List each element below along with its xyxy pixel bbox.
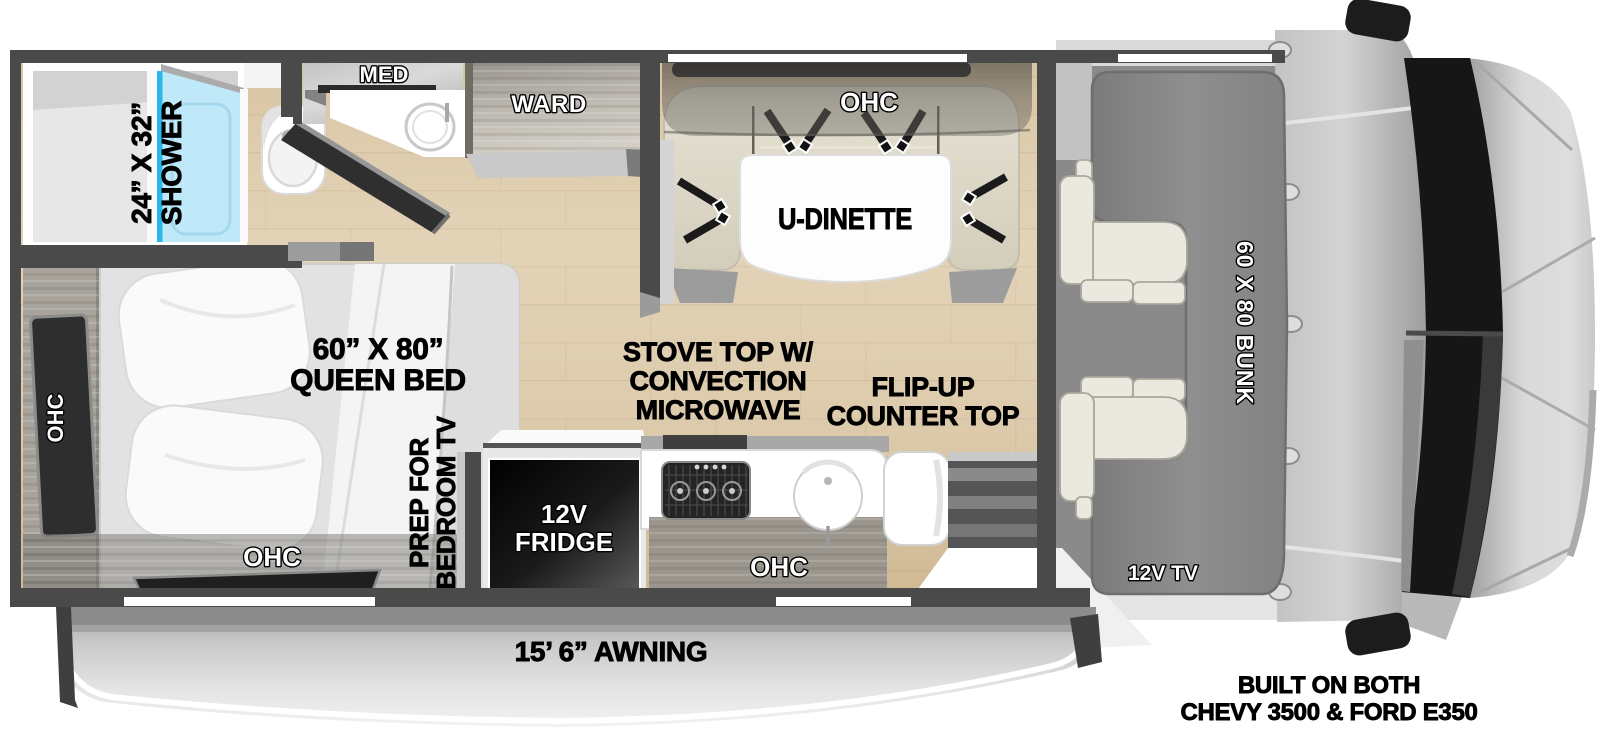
svg-text:OHC: OHC	[243, 542, 301, 572]
svg-text:WARD: WARD	[511, 91, 586, 118]
svg-text:60” X 80”: 60” X 80”	[313, 333, 444, 366]
svg-text:12V: 12V	[541, 499, 588, 529]
svg-text:CONVECTION: CONVECTION	[629, 366, 806, 396]
svg-text:BEDROOM TV: BEDROOM TV	[431, 415, 461, 589]
svg-text:MICROWAVE: MICROWAVE	[636, 395, 801, 425]
svg-text:BUILT ON BOTH: BUILT ON BOTH	[1238, 672, 1420, 699]
svg-text:CHEVY 3500 & FORD E350: CHEVY 3500 & FORD E350	[1180, 699, 1477, 726]
svg-text:U-DINETTE: U-DINETTE	[778, 203, 912, 236]
svg-text:MED: MED	[360, 62, 409, 87]
svg-text:15’ 6” AWNING: 15’ 6” AWNING	[515, 636, 708, 667]
svg-text:OHC: OHC	[43, 393, 68, 442]
svg-text:FRIDGE: FRIDGE	[515, 527, 613, 557]
svg-text:60 X 80 BUNK: 60 X 80 BUNK	[1232, 241, 1258, 405]
svg-text:12V TV: 12V TV	[1128, 562, 1198, 585]
svg-text:SHOWER: SHOWER	[156, 101, 187, 225]
svg-text:24” X 32”: 24” X 32”	[126, 102, 157, 224]
svg-text:OHC: OHC	[750, 552, 808, 582]
svg-text:QUEEN BED: QUEEN BED	[290, 364, 466, 397]
svg-text:COUNTER TOP: COUNTER TOP	[827, 401, 1020, 431]
svg-text:STOVE TOP W/: STOVE TOP W/	[623, 337, 814, 367]
svg-text:FLIP-UP: FLIP-UP	[872, 372, 975, 402]
svg-text:OHC: OHC	[840, 87, 898, 117]
svg-text:PREP FOR: PREP FOR	[404, 437, 434, 568]
